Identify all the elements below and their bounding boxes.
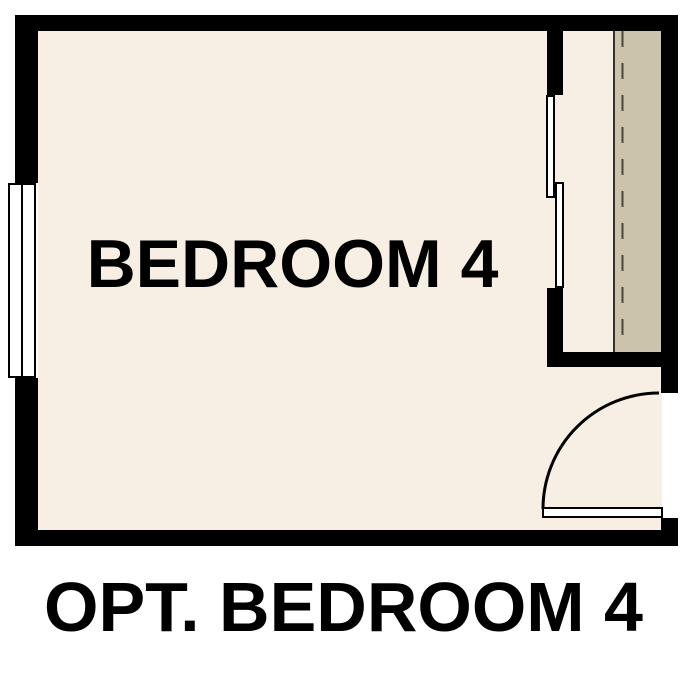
wall-right-upper — [661, 15, 678, 393]
room-label: BEDROOM 4 — [38, 230, 547, 298]
wall-right-lower — [661, 518, 678, 546]
window-mullion — [21, 185, 23, 376]
entry-door-leaf — [542, 507, 663, 518]
closet-shelf — [613, 31, 661, 352]
bypass-closet-door-front — [546, 95, 555, 198]
wall-left-upper — [15, 15, 38, 183]
window — [8, 183, 36, 378]
wall-top — [15, 15, 678, 31]
closet-bottom-wall — [547, 352, 678, 367]
closet-partition-lower — [547, 288, 563, 352]
closet-partition-upper — [547, 31, 563, 95]
floor-plan-canvas: BEDROOM 4 OPT. BEDROOM 4 — [0, 0, 687, 687]
plan-caption: OPT. BEDROOM 4 — [0, 572, 687, 642]
wall-bottom — [15, 530, 678, 546]
bypass-closet-door-back — [555, 182, 564, 288]
wall-left-lower — [15, 378, 38, 546]
